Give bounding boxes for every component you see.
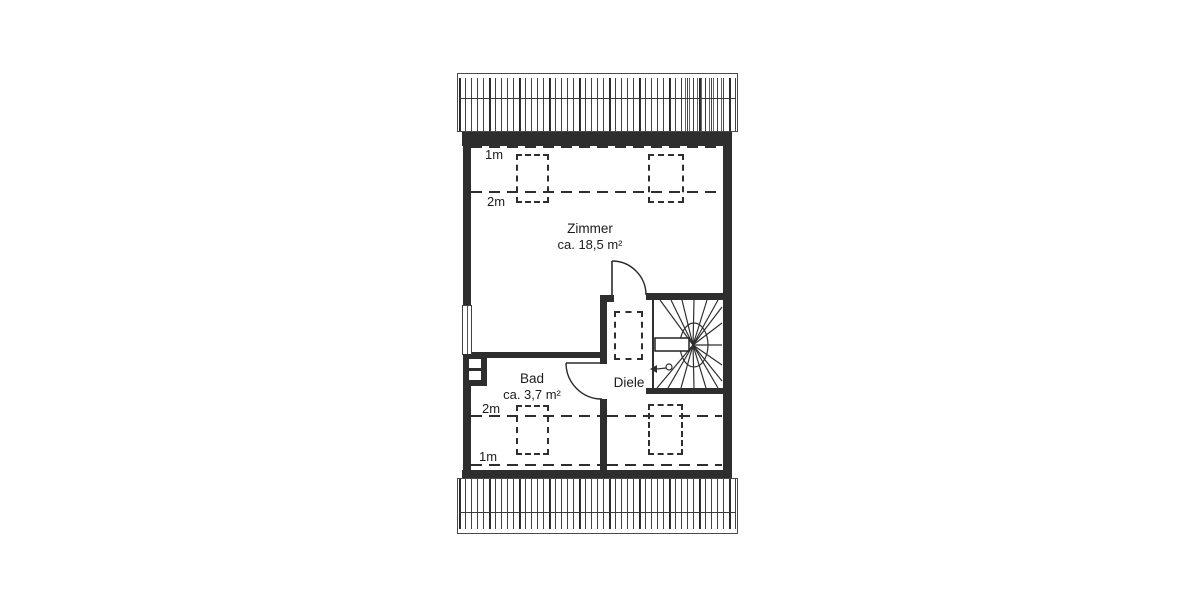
door-zimmer [612, 261, 646, 295]
room-zimmer-name: Zimmer [520, 221, 660, 237]
room-label-diele: Diele [600, 375, 658, 391]
doors-and-stairs-drawing [0, 0, 1200, 600]
marker-1m-bottom: 1m [479, 450, 497, 465]
staircase [650, 300, 722, 388]
room-bad-name: Bad [472, 371, 592, 387]
floor-plan: Zimmer ca. 18,5 m² Bad ca. 3,7 m² Diele … [0, 0, 1200, 600]
room-label-bad: Bad ca. 3,7 m² [472, 371, 592, 403]
room-label-zimmer: Zimmer ca. 18,5 m² [520, 221, 660, 253]
marker-2m-top: 2m [487, 195, 505, 210]
marker-1m-top: 1m [485, 148, 503, 163]
stair-landing-bar [655, 338, 689, 351]
room-zimmer-area: ca. 18,5 m² [520, 237, 660, 253]
room-diele-name: Diele [600, 375, 658, 391]
marker-2m-bottom: 2m [482, 402, 500, 417]
